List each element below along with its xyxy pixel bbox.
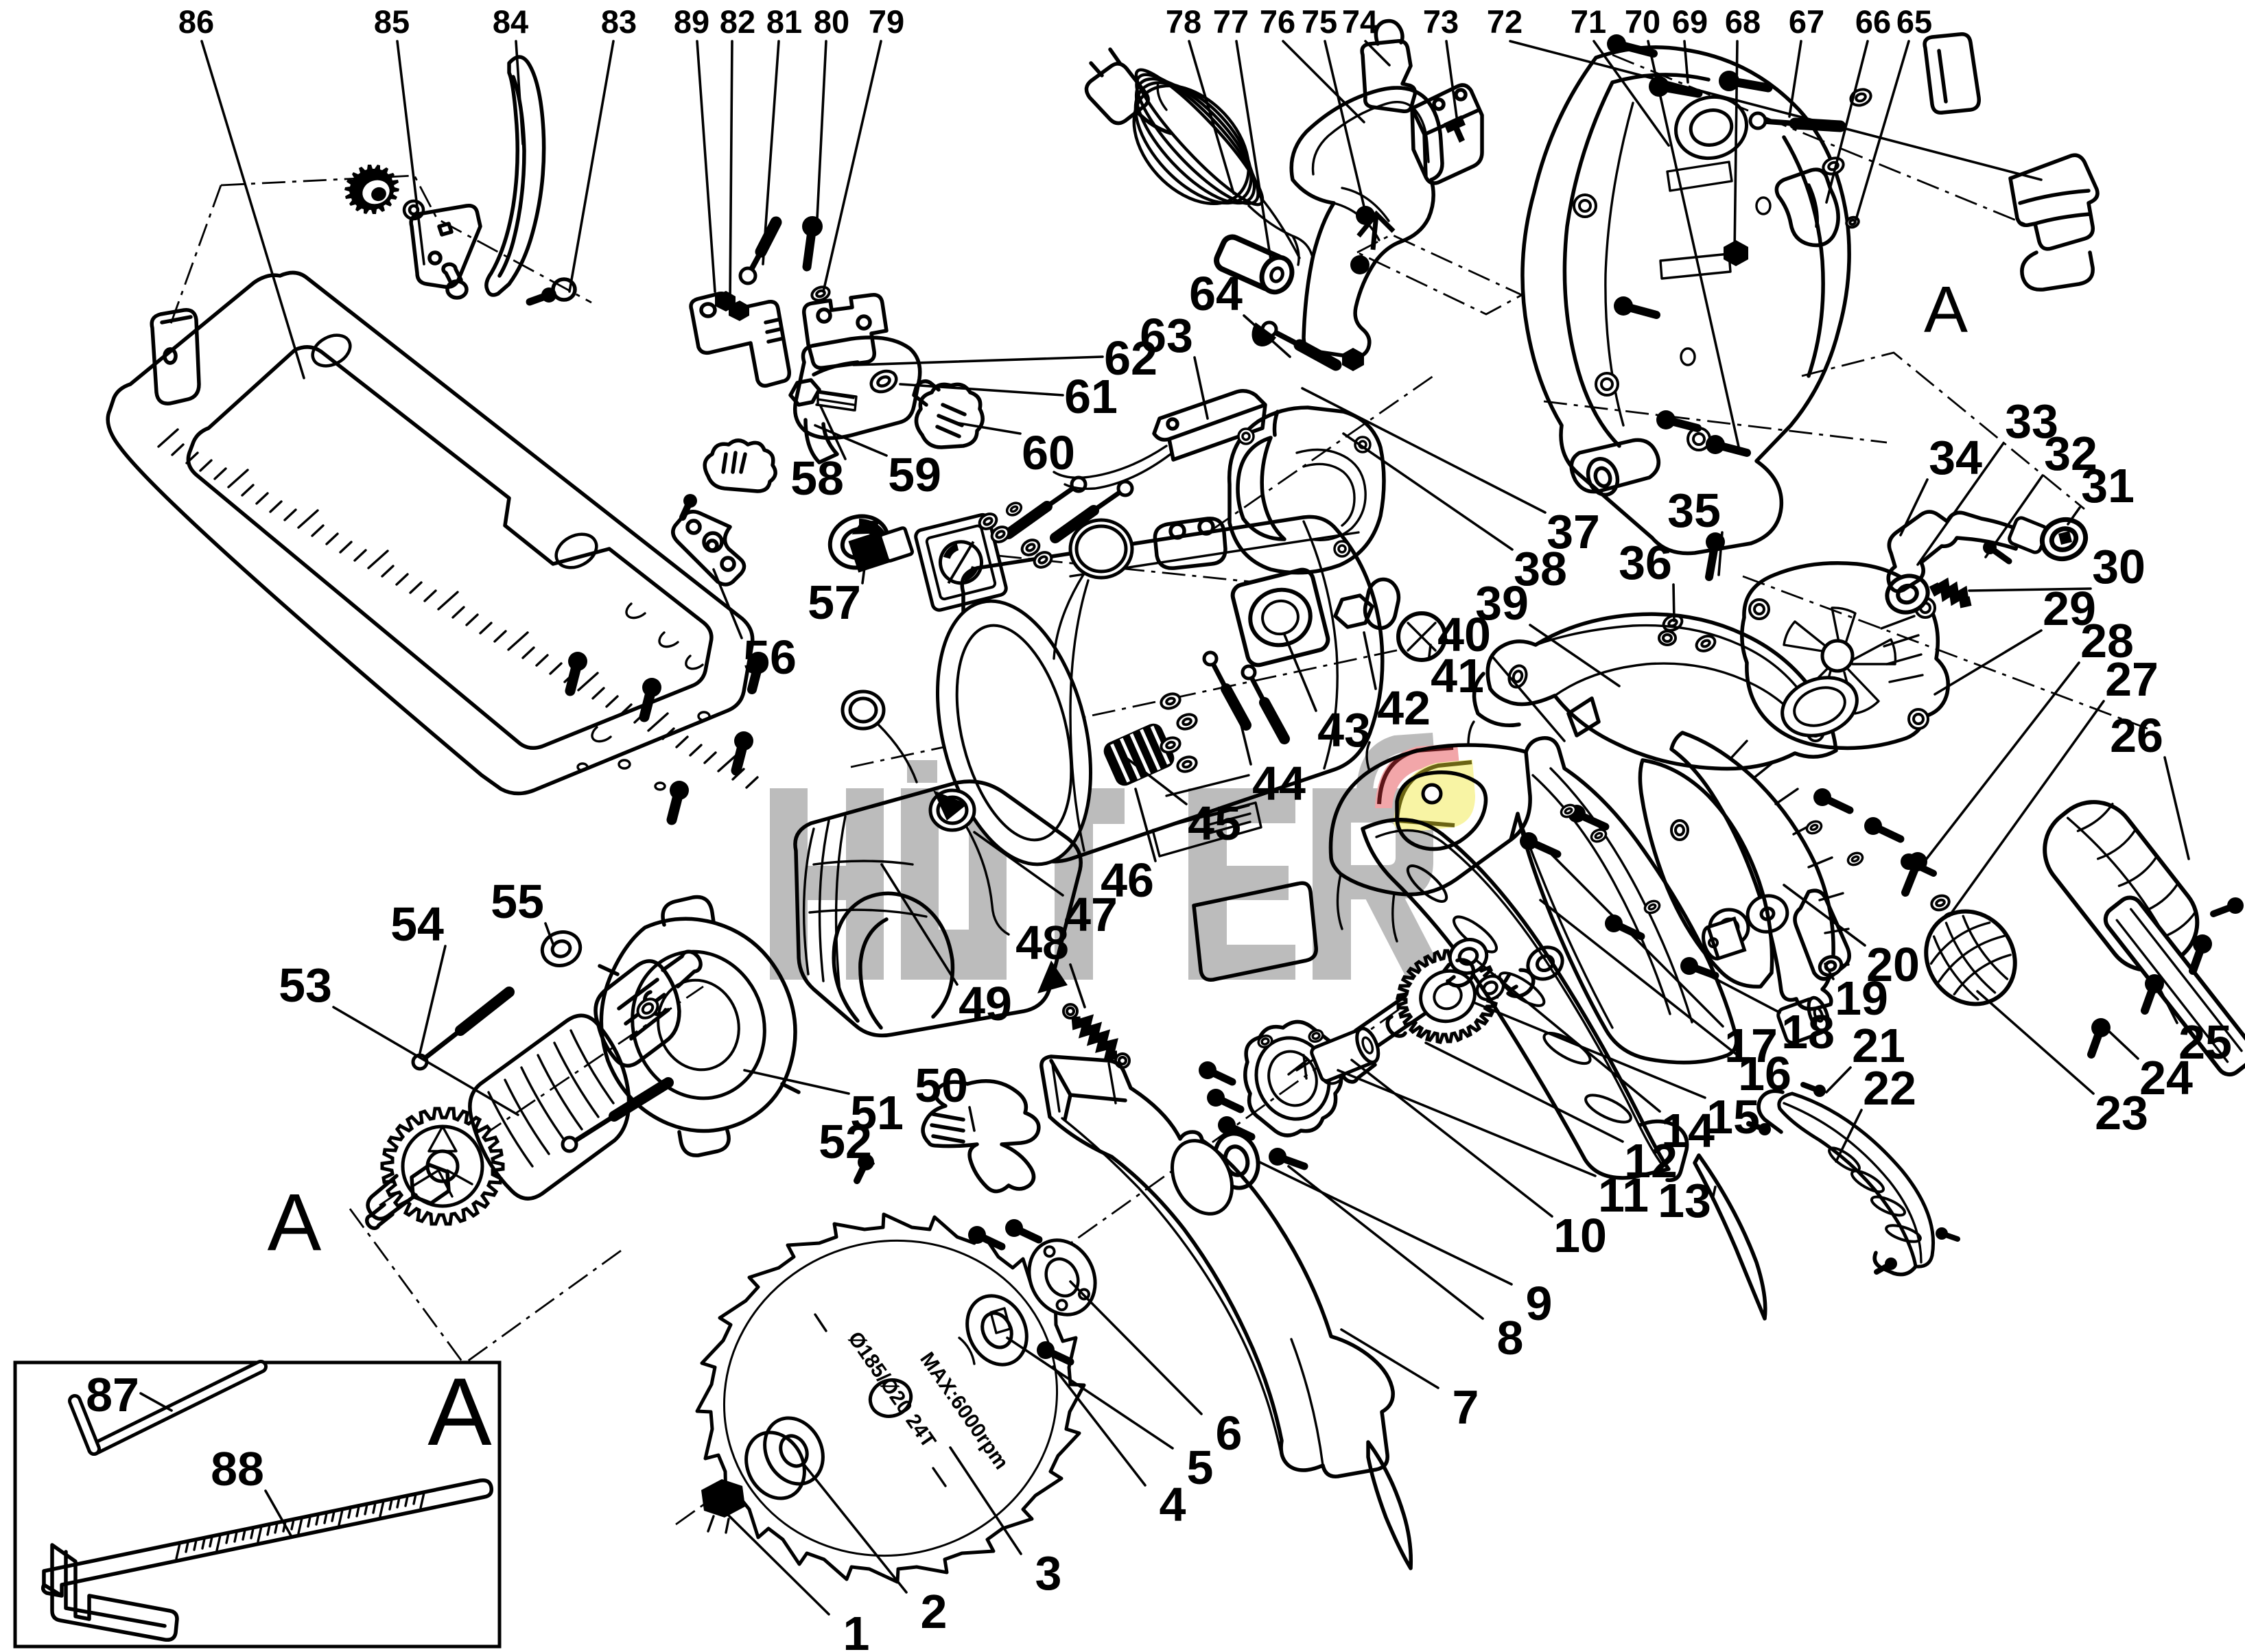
svg-text:88: 88 [211, 1442, 264, 1496]
svg-text:31: 31 [2081, 459, 2135, 512]
svg-text:10: 10 [1553, 1209, 1607, 1262]
svg-text:1: 1 [843, 1607, 870, 1652]
svg-text:69: 69 [1672, 3, 1708, 40]
svg-text:35: 35 [1667, 484, 1721, 537]
svg-text:70: 70 [1625, 3, 1660, 40]
svg-text:2: 2 [921, 1585, 948, 1638]
svg-text:64: 64 [1189, 267, 1243, 320]
svg-text:61: 61 [1064, 370, 1118, 423]
svg-text:83: 83 [601, 3, 637, 40]
svg-text:87: 87 [86, 1368, 139, 1421]
svg-text:21: 21 [1852, 1019, 1905, 1072]
svg-text:46: 46 [1101, 853, 1154, 907]
svg-text:74: 74 [1342, 3, 1378, 40]
svg-text:36: 36 [1619, 536, 1672, 589]
svg-text:A: A [268, 1177, 322, 1268]
svg-text:30: 30 [2092, 540, 2146, 593]
svg-text:6: 6 [1216, 1406, 1243, 1460]
svg-text:66: 66 [1855, 3, 1891, 40]
svg-text:54: 54 [390, 897, 444, 951]
svg-text:67: 67 [1789, 3, 1824, 40]
svg-text:78: 78 [1166, 3, 1201, 40]
svg-text:49: 49 [959, 977, 1012, 1030]
svg-text:84: 84 [493, 3, 528, 40]
svg-text:86: 86 [178, 3, 214, 40]
svg-text:5: 5 [1187, 1441, 1214, 1494]
svg-text:37: 37 [1547, 505, 1600, 558]
svg-text:79: 79 [869, 3, 904, 40]
svg-text:65: 65 [1896, 3, 1932, 40]
svg-text:44: 44 [1252, 757, 1306, 810]
svg-text:80: 80 [814, 3, 849, 40]
svg-text:75: 75 [1302, 3, 1337, 40]
svg-text:57: 57 [808, 576, 861, 629]
svg-text:23: 23 [2095, 1086, 2148, 1140]
svg-text:A: A [427, 1358, 492, 1465]
svg-text:50: 50 [915, 1059, 968, 1112]
svg-text:59: 59 [888, 448, 941, 501]
svg-text:19: 19 [1835, 971, 1888, 1025]
svg-text:9: 9 [1526, 1277, 1553, 1330]
svg-text:71: 71 [1571, 3, 1606, 40]
svg-text:76: 76 [1260, 3, 1295, 40]
svg-text:42: 42 [1377, 681, 1431, 735]
svg-text:8: 8 [1497, 1311, 1524, 1365]
svg-text:56: 56 [743, 630, 797, 684]
svg-text:34: 34 [1929, 431, 1982, 484]
svg-text:72: 72 [1487, 3, 1523, 40]
svg-text:45: 45 [1188, 796, 1241, 850]
svg-text:26: 26 [2110, 709, 2163, 762]
svg-text:73: 73 [1423, 3, 1459, 40]
svg-text:81: 81 [766, 3, 802, 40]
svg-text:53: 53 [279, 958, 332, 1012]
svg-text:58: 58 [790, 451, 844, 505]
svg-text:7: 7 [1453, 1380, 1479, 1434]
svg-text:82: 82 [720, 3, 755, 40]
svg-text:77: 77 [1213, 3, 1249, 40]
svg-text:43: 43 [1317, 703, 1371, 757]
svg-text:51: 51 [850, 1086, 904, 1140]
svg-text:3: 3 [1035, 1546, 1062, 1600]
svg-text:27: 27 [2105, 652, 2159, 706]
svg-text:60: 60 [1022, 426, 1075, 480]
svg-text:85: 85 [374, 3, 410, 40]
svg-text:89: 89 [674, 3, 709, 40]
svg-text:68: 68 [1725, 3, 1761, 40]
svg-text:55: 55 [491, 875, 544, 928]
svg-text:4: 4 [1160, 1478, 1186, 1531]
svg-text:A: A [1924, 273, 1968, 346]
svg-text:48: 48 [1015, 916, 1069, 969]
